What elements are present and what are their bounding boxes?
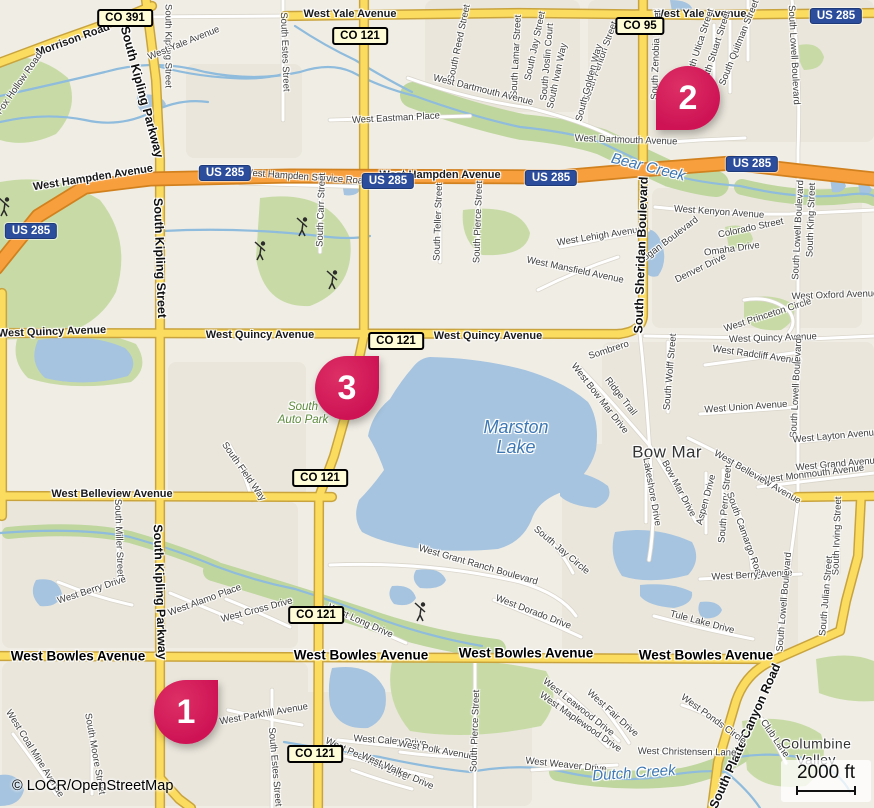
street-label: South Camargo Road — [723, 491, 764, 581]
street-label: South Lowell Boulevard — [775, 552, 794, 652]
highway-shield: CO 95 — [615, 17, 664, 35]
highway-shield: US 285 — [525, 170, 577, 186]
place-label: Bow Mar — [632, 442, 702, 461]
street-label: South Perry Street — [717, 465, 734, 544]
street-label: Tule Lake Drive — [669, 609, 736, 636]
street-label: South Lamar Street — [510, 15, 525, 98]
street-label: South Joslin Court — [539, 23, 556, 101]
highway-shield: CO 121 — [332, 27, 388, 45]
street-label: South Lowell Boulevard — [791, 180, 807, 280]
street-label: West Quincy Avenue — [0, 324, 106, 340]
marker-number: 3 — [338, 369, 357, 408]
street-label: South Estes Street — [265, 727, 282, 807]
street-label: West Kenyon Avenue — [673, 205, 764, 222]
street-label: West Berry Drive — [56, 575, 127, 607]
street-label: South Estes Street — [277, 12, 290, 92]
street-label: South Pierce Street — [469, 690, 482, 773]
street-label: South Quitman Street — [718, 0, 762, 87]
street-label: West Dartmouth Avenue — [575, 134, 678, 148]
street-label: South Miller Street — [111, 499, 124, 577]
street-label: West Polk Avenue — [397, 739, 474, 763]
street-label: West Fair Drive — [584, 688, 640, 740]
street-label: South Field Way — [219, 441, 267, 504]
map-attribution: © LOCR/OpenStreetMap — [12, 778, 173, 794]
street-label: South Jay Circle — [531, 525, 591, 578]
street-label: West Mansfield Avenue — [526, 256, 625, 287]
street-label: South Reed Street — [447, 4, 474, 83]
street-label: South Teller Street — [432, 183, 445, 261]
street-label: South Golden Way — [575, 43, 606, 122]
street-label: West Grand Avenue — [795, 456, 874, 474]
street-label: West Dorado Drive — [494, 594, 573, 633]
highway-shield: CO 121 — [368, 332, 424, 350]
street-label: West Princeton Circle — [723, 297, 813, 335]
marker-number: 2 — [679, 79, 698, 118]
street-label: West Bowles Avenue — [459, 645, 594, 660]
street-label: West Yale Avenue — [654, 8, 747, 20]
street-label: West Bow Mar Drive — [568, 362, 630, 437]
street-label: South Kipling Street — [162, 4, 173, 88]
street-label: West Yale Avenue — [304, 8, 397, 20]
street-label: South Carr Street — [315, 173, 328, 247]
street-label: West Cross Drive — [220, 596, 294, 625]
highway-shield: US 285 — [5, 223, 57, 239]
map-marker-1[interactable]: 1 — [154, 680, 218, 744]
street-label: West Layton Avenue — [792, 428, 874, 446]
highway-shield: CO 391 — [97, 9, 153, 27]
street-label: South Sheridan Boulevard — [631, 176, 650, 333]
scale-bar-label: 2000 ft — [784, 762, 868, 784]
map: © LOCR/OpenStreetMap 2000 ft CO 391CO 12… — [0, 0, 874, 808]
street-label: West Belleview Avenue — [51, 488, 172, 500]
water-label: Bear Creek — [609, 151, 687, 186]
street-label: South Irving Street — [831, 496, 844, 575]
street-label: West Radcliff Avenue — [712, 344, 802, 367]
street-label: West Hampden Service Road — [243, 168, 368, 187]
street-label: West Belleview Avenue — [712, 449, 803, 507]
street-label: West Lehigh Avenue — [556, 225, 643, 249]
street-label: West Christensen Lane — [638, 747, 737, 759]
street-label: West Bowles Avenue — [639, 647, 774, 662]
street-label: West Leawood Drive — [540, 677, 615, 739]
street-label: West Weaver Drive — [525, 756, 607, 775]
street-label: Lakeshore Drive — [640, 457, 662, 527]
street-label: South King Street — [805, 183, 818, 258]
map-marker-3[interactable]: 3 — [315, 356, 379, 420]
street-label: West Bowles Avenue — [11, 648, 146, 663]
street-label: West Eastman Place — [352, 111, 440, 126]
street-label: West Grant Ranch Boulevard — [417, 544, 539, 588]
street-label: South Pierce Street — [472, 181, 485, 264]
water-label: Dutch Creek — [592, 763, 676, 786]
highway-shield: US 285 — [199, 165, 251, 181]
street-label: West Parkhill Avenue — [219, 702, 309, 728]
street-label: South Kipling Parkway — [151, 524, 170, 660]
street-label: Aspen Drive — [695, 474, 719, 527]
street-label: Fox Hollow Road — [0, 51, 45, 116]
highway-shield: CO 121 — [287, 745, 343, 763]
street-label: South Jay Street — [524, 11, 549, 82]
street-label: Denver Drive — [674, 252, 728, 286]
street-label: South Ivan Way — [546, 42, 570, 109]
highway-shield: CO 121 — [288, 606, 344, 624]
street-label: West Maplewood Drive — [537, 691, 623, 756]
street-label: Ridge Trail — [602, 376, 638, 418]
street-label: Bow Mar Drive — [659, 459, 698, 519]
street-label: South Lowell Boulevard — [789, 338, 805, 438]
map-overlay: © LOCR/OpenStreetMap 2000 ft CO 391CO 12… — [0, 0, 874, 808]
street-label: West Ponds Circle — [678, 693, 747, 747]
street-label: West Alamo Place — [167, 583, 243, 619]
water-label: Marston Lake — [483, 417, 548, 457]
street-label: South Wolff Street — [662, 333, 679, 410]
highway-shield: US 285 — [362, 173, 414, 189]
street-label: South Lowell Boulevard — [785, 5, 801, 105]
street-label: West Quincy Avenue — [434, 330, 542, 342]
street-label: West Caley Drive — [353, 734, 427, 750]
street-label: South Kipling Street — [151, 198, 169, 319]
street-label: West Yale Avenue — [147, 25, 222, 63]
highway-shield: US 285 — [726, 156, 778, 172]
street-label: West Union Avenue — [704, 400, 788, 416]
map-marker-2[interactable]: 2 — [656, 66, 720, 130]
street-label: West Oxford Avenue — [791, 289, 874, 303]
street-label: South Platte Canyon Road — [707, 661, 784, 808]
street-label: West Monmouth Avenue — [761, 463, 865, 486]
scale-bar: 2000 ft — [781, 760, 871, 802]
street-label: South Kipling Parkway — [118, 25, 167, 159]
street-label: Club Lane — [757, 718, 790, 760]
marker-number: 1 — [177, 693, 196, 732]
highway-shield: CO 121 — [292, 469, 348, 487]
street-label: Logan Boulevard — [637, 215, 701, 267]
street-label: West Quincy Avenue — [206, 329, 314, 341]
street-label: West Dartmouth Avenue — [432, 73, 534, 108]
street-label: Colorado Street — [717, 217, 784, 241]
street-label: West Bowles Avenue — [294, 647, 429, 662]
scale-bar-rule — [796, 786, 856, 795]
street-label: Sombrero — [588, 340, 631, 363]
street-label: West Berry Avenue — [711, 569, 792, 584]
street-label: West Walker Drive — [359, 751, 435, 792]
street-label: South Julian Street — [818, 556, 836, 637]
street-label: Omaha Drive — [704, 241, 761, 259]
highway-shield: US 285 — [810, 8, 862, 24]
street-label: West Hampden Avenue — [32, 162, 154, 193]
street-label: West Quincy Avenue — [729, 332, 817, 346]
